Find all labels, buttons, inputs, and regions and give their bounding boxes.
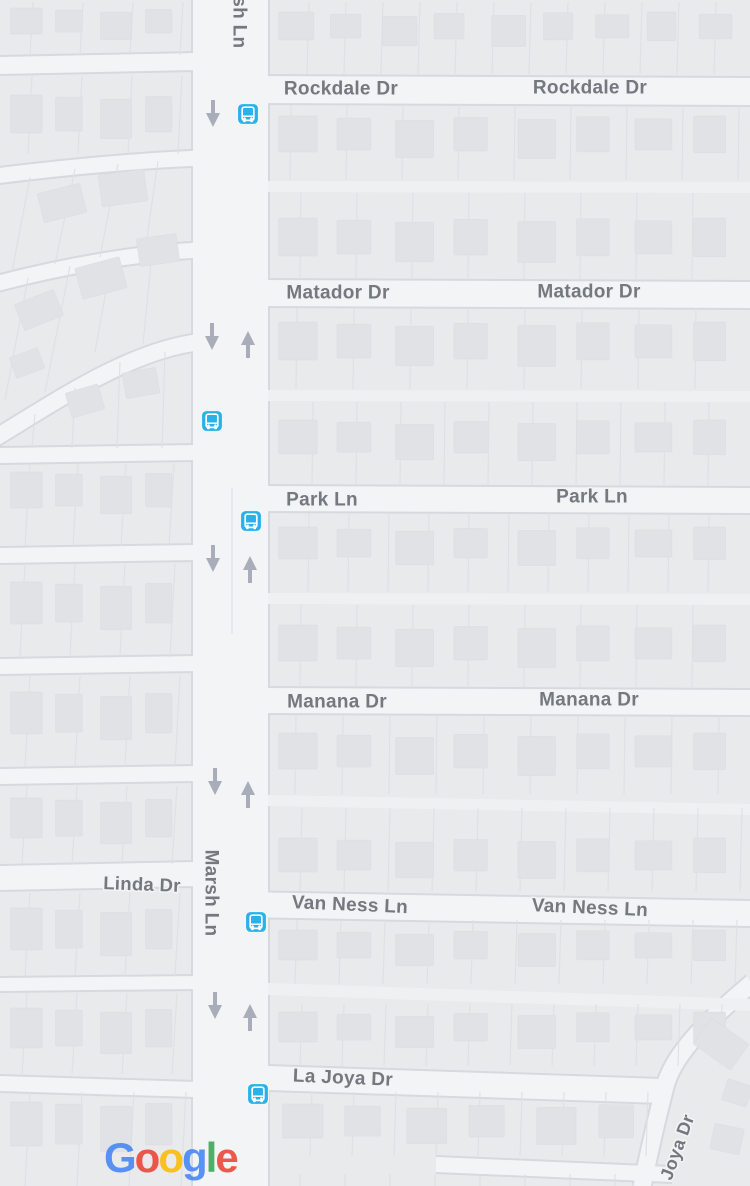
building-footprint <box>595 15 629 38</box>
building-footprint <box>279 733 318 769</box>
building-footprint <box>694 322 726 361</box>
building-footprint <box>518 326 556 367</box>
building-footprint <box>635 933 672 958</box>
building-footprint <box>694 930 726 961</box>
building-footprint <box>11 8 43 34</box>
building-footprint <box>396 737 434 775</box>
building-footprint <box>101 476 132 514</box>
building-footprint <box>396 120 434 158</box>
building-footprint <box>396 842 434 878</box>
building-footprint <box>11 472 43 508</box>
google-logo-letter: l <box>206 1137 216 1179</box>
building-footprint <box>98 169 148 207</box>
building-footprint <box>577 528 610 559</box>
building-footprint <box>635 628 672 659</box>
building-footprint <box>279 322 318 360</box>
building-footprint <box>11 95 43 133</box>
building-footprint <box>577 839 610 872</box>
building-footprint <box>279 12 314 40</box>
building-footprint <box>337 220 371 254</box>
building-footprint <box>279 527 318 559</box>
building-footprint <box>337 735 371 767</box>
building-footprint <box>518 120 556 159</box>
building-footprint <box>694 625 726 662</box>
building-footprint <box>11 1008 43 1048</box>
building-footprint <box>543 13 572 40</box>
building-footprint <box>56 584 83 622</box>
building-footprint <box>577 421 610 454</box>
street-label-rockdale-dr: Rockdale Dr <box>284 79 398 100</box>
bus-stop-icon[interactable] <box>202 411 223 432</box>
building-footprint <box>279 116 318 152</box>
building-footprint <box>56 694 83 732</box>
google-logo-letter: e <box>215 1137 236 1179</box>
street-label-marsh-ln: Marsh Ln <box>228 0 249 48</box>
building-footprint <box>101 696 132 740</box>
building-footprint <box>396 222 434 262</box>
building-footprint <box>396 531 434 565</box>
bus-stop-icon[interactable] <box>246 912 267 933</box>
street-label-park-ln: Park Ln <box>556 487 628 508</box>
building-footprint <box>635 325 672 358</box>
building-footprint <box>577 1013 610 1042</box>
building-footprint <box>635 736 672 767</box>
building-footprint <box>382 16 417 46</box>
building-footprint <box>337 422 371 452</box>
building-footprint <box>492 16 526 47</box>
building-footprint <box>518 531 556 566</box>
building-footprint <box>146 909 172 949</box>
building-footprint <box>599 1105 634 1138</box>
building-footprint <box>279 420 318 454</box>
building-footprint <box>454 931 487 959</box>
building-footprint <box>56 474 83 506</box>
building-footprint <box>577 734 610 769</box>
building-footprint <box>635 119 672 150</box>
building-footprint <box>56 910 83 948</box>
google-logo-letter: G <box>104 1137 135 1179</box>
building-footprint <box>146 799 172 837</box>
building-footprint <box>56 97 83 131</box>
building-footprint <box>330 14 361 38</box>
building-footprint <box>337 627 371 659</box>
google-logo-letter: o <box>158 1137 182 1179</box>
building-footprint <box>454 323 487 359</box>
building-footprint <box>11 692 43 734</box>
building-footprint <box>283 1104 324 1138</box>
building-footprint <box>11 908 43 950</box>
building-footprint <box>694 218 726 257</box>
building-footprint <box>11 798 43 838</box>
building-footprint <box>518 1016 556 1049</box>
building-footprint <box>454 528 487 558</box>
building-footprint <box>279 218 318 256</box>
building-footprint <box>337 840 371 870</box>
building-footprint <box>337 932 371 958</box>
building-footprint <box>694 838 726 873</box>
building-footprint <box>396 934 434 966</box>
building-footprint <box>337 118 371 150</box>
building-footprint <box>518 842 556 879</box>
building-footprint <box>146 96 172 132</box>
building-footprint <box>101 99 132 139</box>
building-footprint <box>279 1012 318 1042</box>
building-footprint <box>337 1014 371 1040</box>
building-footprint <box>56 800 83 836</box>
street-label-manana-dr: Manana Dr <box>287 692 387 713</box>
street-label-linda-dr: Linda Dr <box>103 872 181 896</box>
building-footprint <box>146 583 172 623</box>
building-footprint <box>635 841 672 870</box>
building-footprint <box>647 12 676 41</box>
building-footprint <box>337 529 371 557</box>
building-footprint <box>635 423 672 452</box>
building-footprint <box>279 930 318 960</box>
building-footprint <box>469 1105 504 1137</box>
building-footprint <box>699 14 732 39</box>
building-footprint <box>577 323 610 360</box>
google-logo-letter: o <box>135 1137 159 1179</box>
street-label-matador-dr: Matador Dr <box>286 283 390 304</box>
building-footprint <box>434 13 464 39</box>
street-label-park-ln: Park Ln <box>286 490 358 511</box>
building-footprint <box>454 839 487 871</box>
building-footprint <box>101 802 132 844</box>
building-footprint <box>146 473 172 507</box>
building-footprint <box>694 420 726 455</box>
street-label-matador-dr: Matador Dr <box>537 282 641 303</box>
building-footprint <box>518 629 556 668</box>
street-label-rockdale-dr: Rockdale Dr <box>533 78 647 99</box>
building-footprint <box>56 10 83 32</box>
building-footprint <box>537 1108 576 1145</box>
map-canvas: Rockdale DrRockdale DrMatador DrMatador … <box>0 0 750 1186</box>
building-footprint <box>407 1108 447 1144</box>
building-footprint <box>122 367 160 399</box>
building-footprint <box>101 12 132 40</box>
building-footprint <box>577 626 610 661</box>
building-footprint <box>101 1012 132 1054</box>
building-footprint <box>635 221 672 254</box>
building-footprint <box>518 934 556 967</box>
building-footprint <box>396 1016 434 1048</box>
building-footprint <box>694 116 726 153</box>
building-footprint <box>101 912 132 956</box>
building-footprint <box>454 117 487 151</box>
street-label-la-joya-dr: La Joya Dr <box>292 1065 393 1090</box>
building-footprint <box>635 1015 672 1040</box>
building-footprint <box>518 222 556 263</box>
bus-stop-icon[interactable] <box>238 104 259 125</box>
google-logo[interactable]: Google <box>104 1137 237 1179</box>
building-footprint <box>694 733 726 770</box>
building-footprint <box>279 838 318 872</box>
building-footprint <box>136 233 180 266</box>
building-footprint <box>11 1102 43 1146</box>
building-footprint <box>146 1009 172 1047</box>
bus-stop-icon[interactable] <box>241 511 262 532</box>
building-footprint <box>694 527 726 560</box>
google-logo-letter: g <box>182 1137 206 1179</box>
street-label-manana-dr: Manana Dr <box>539 690 639 711</box>
building-footprint <box>454 1013 487 1041</box>
building-footprint <box>396 424 434 460</box>
building-footprint <box>518 424 556 461</box>
building-footprint <box>577 931 610 960</box>
building-footprint <box>396 326 434 366</box>
building-footprint <box>577 219 610 256</box>
bus-stop-icon[interactable] <box>248 1084 269 1105</box>
building-footprint <box>279 625 318 661</box>
map-viewport[interactable]: Rockdale DrRockdale DrMatador DrMatador … <box>0 0 750 1186</box>
building-footprint <box>101 586 132 630</box>
building-footprint <box>454 626 487 660</box>
building-footprint <box>454 219 487 255</box>
building-footprint <box>635 530 672 557</box>
building-footprint <box>454 734 487 768</box>
building-footprint <box>56 1010 83 1046</box>
building-footprint <box>577 117 610 152</box>
building-footprint <box>345 1106 381 1136</box>
building-footprint <box>146 693 172 733</box>
building-footprint <box>337 324 371 358</box>
building-footprint <box>146 9 172 33</box>
building-footprint <box>396 629 434 667</box>
street-label-marsh-ln: Marsh Ln <box>200 850 221 937</box>
building-footprint <box>11 582 43 624</box>
building-footprint <box>518 737 556 776</box>
building-footprint <box>454 421 487 453</box>
building-footprint <box>56 1104 83 1144</box>
